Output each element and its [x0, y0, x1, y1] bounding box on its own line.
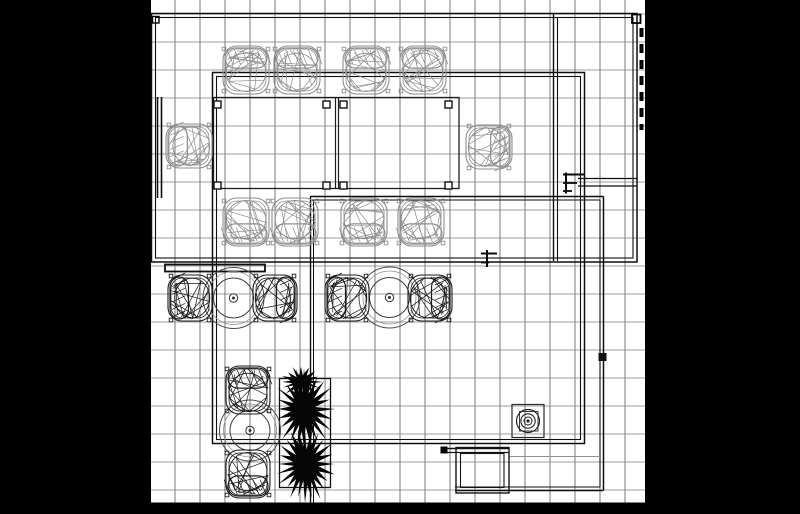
cad-viewport [0, 0, 800, 514]
floor-plan-drawing [0, 0, 800, 514]
